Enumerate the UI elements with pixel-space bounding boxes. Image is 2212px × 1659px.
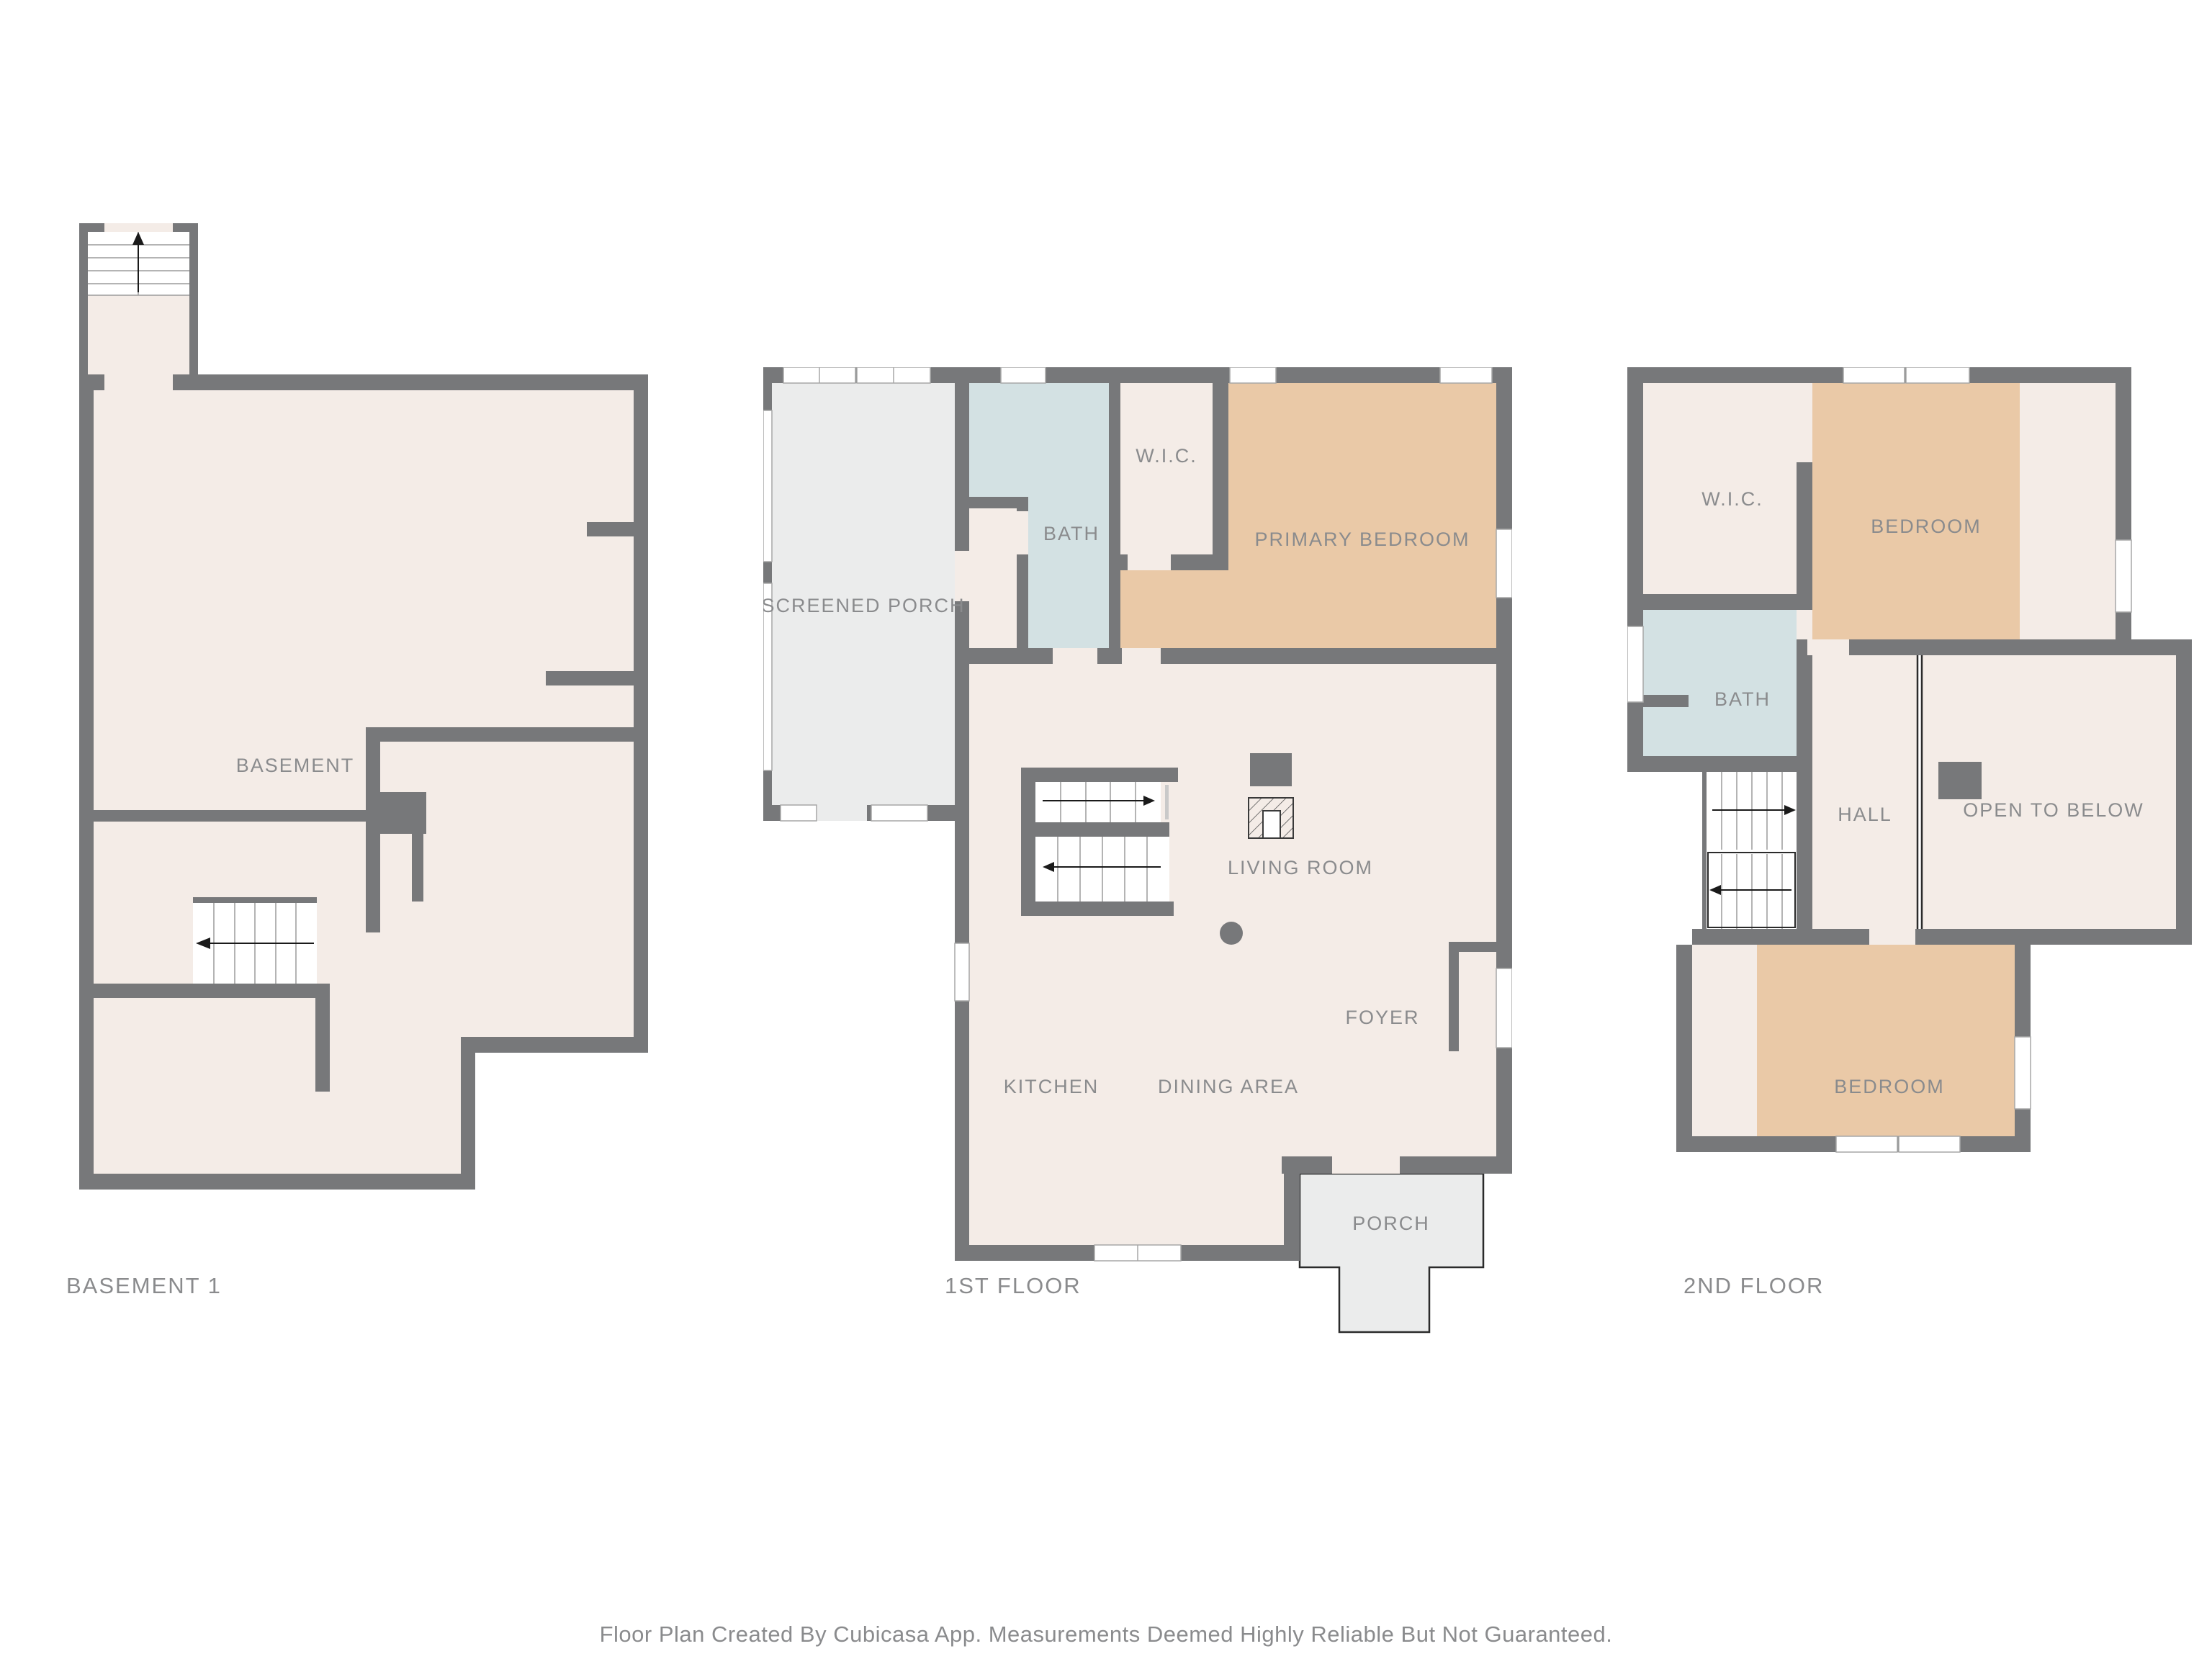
primary-bedroom-extension	[1120, 570, 1228, 648]
second-floor-plan-svg: W.I.C. BEDROOM BATH HALL OPEN TO BELOW B…	[1627, 367, 2203, 1217]
basement-floor-plan-svg: BASEMENT	[79, 223, 648, 1217]
primary-bedroom-area	[1228, 383, 1496, 648]
room-label-porch: PORCH	[1352, 1213, 1430, 1234]
chimney-block	[1938, 762, 1982, 799]
second-floor-title: 2ND FLOOR	[1683, 1273, 1824, 1299]
bedroom-top-area	[1812, 383, 2020, 639]
first-floor-title: 1ST FLOOR	[945, 1273, 1082, 1299]
bedroom-bottom-area	[1757, 945, 2015, 1136]
first-floor-plan-svg: SCREENED PORCH BATH W.I.C. PRIMARY BEDRO…	[763, 367, 1512, 1336]
basement-exit-stairs	[88, 232, 189, 295]
first-floor-stairs	[1035, 782, 1169, 902]
stair-landing-door	[1165, 785, 1169, 819]
room-label-bedroom-bottom: BEDROOM	[1834, 1076, 1945, 1097]
room-label-primary-bedroom: PRIMARY BEDROOM	[1254, 529, 1470, 550]
basement-floor-plan: BASEMENT	[79, 223, 648, 1217]
room-label-foyer: FOYER	[1345, 1007, 1419, 1028]
front-porch	[1300, 1174, 1483, 1332]
open-to-below-railing	[1917, 655, 1923, 929]
room-label-hall: HALL	[1838, 804, 1892, 825]
second-floor-plan: W.I.C. BEDROOM BATH HALL OPEN TO BELOW B…	[1627, 367, 2203, 1217]
bath-area-lower	[1028, 497, 1109, 648]
basement-interior-stairs	[193, 903, 317, 984]
first-floor-plan: SCREENED PORCH BATH W.I.C. PRIMARY BEDRO…	[763, 367, 1512, 1336]
room-label-wic: W.I.C.	[1701, 488, 1763, 510]
bath-area-upper	[969, 383, 1109, 497]
room-label-basement: BASEMENT	[236, 755, 355, 776]
hall-area	[1797, 655, 1917, 929]
room-label-bedroom-top: BEDROOM	[1871, 516, 1982, 537]
room-label-wic: W.I.C.	[1136, 445, 1197, 467]
room-label-bath: BATH	[1043, 523, 1100, 544]
room-label-dining-area: DINING AREA	[1158, 1076, 1299, 1097]
room-label-open-to-below: OPEN TO BELOW	[1963, 799, 2144, 821]
room-label-kitchen: KITCHEN	[1004, 1076, 1100, 1097]
basement-title: BASEMENT 1	[66, 1273, 222, 1299]
caption: Floor Plan Created By Cubicasa App. Meas…	[0, 1622, 2212, 1647]
room-label-living-room: LIVING ROOM	[1228, 857, 1373, 878]
screened-porch-area	[772, 383, 955, 805]
ceiling-fixture-dot	[1220, 922, 1243, 945]
room-label-screened-porch: SCREENED PORCH	[763, 595, 966, 616]
bath-area	[1643, 610, 1797, 756]
chimney-block	[1250, 753, 1292, 786]
second-floor-stairs	[1707, 772, 1797, 929]
room-label-bath: BATH	[1714, 688, 1771, 710]
